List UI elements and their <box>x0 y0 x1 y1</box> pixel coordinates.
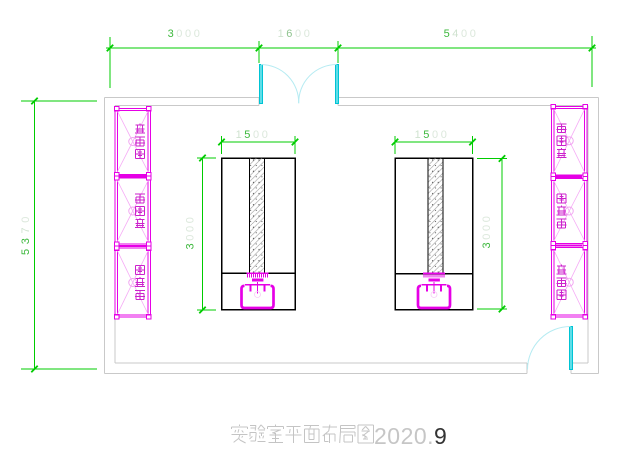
svg-text:1500: 1500 <box>236 129 271 141</box>
svg-text:5400: 5400 <box>444 28 479 40</box>
svg-text:1500: 1500 <box>415 129 450 141</box>
svg-text:3000: 3000 <box>185 215 197 250</box>
svg-text:9: 9 <box>434 423 447 449</box>
svg-text:3000: 3000 <box>481 214 493 249</box>
svg-text:1600: 1600 <box>278 28 313 40</box>
svg-text:3000: 3000 <box>168 28 203 40</box>
svg-text:2020.: 2020. <box>374 423 434 449</box>
svg-text:5370: 5370 <box>20 212 32 255</box>
